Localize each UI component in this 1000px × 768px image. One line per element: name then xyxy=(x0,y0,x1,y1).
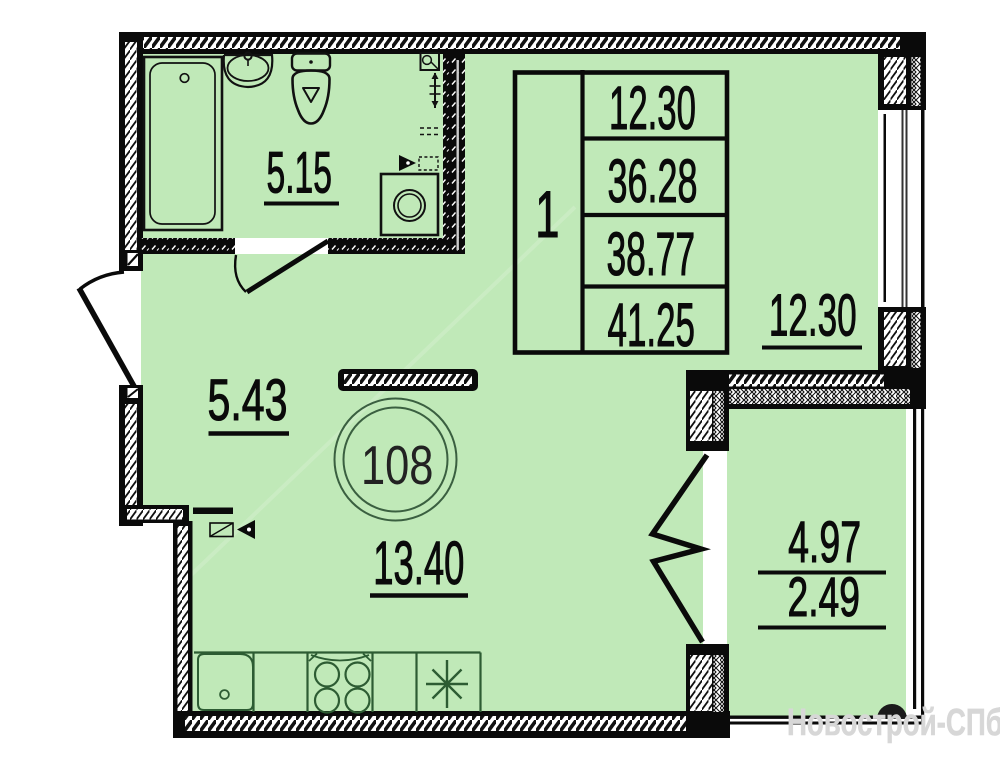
svg-text:13.40: 13.40 xyxy=(373,529,464,597)
svg-text:41.25: 41.25 xyxy=(608,291,695,360)
svg-text:5.15: 5.15 xyxy=(267,141,332,206)
svg-text:36.28: 36.28 xyxy=(608,147,698,215)
svg-text:108: 108 xyxy=(361,434,433,496)
svg-text:5.43: 5.43 xyxy=(207,368,287,433)
svg-text:1: 1 xyxy=(535,177,559,251)
svg-text:4.97: 4.97 xyxy=(788,511,861,575)
svg-text:12.30: 12.30 xyxy=(769,283,857,349)
svg-text:12.30: 12.30 xyxy=(609,74,696,143)
svg-text:2.49: 2.49 xyxy=(787,567,859,629)
svg-text:Новострой-СПб: Новострой-СПб xyxy=(787,702,1000,744)
svg-text:38.77: 38.77 xyxy=(607,220,695,289)
